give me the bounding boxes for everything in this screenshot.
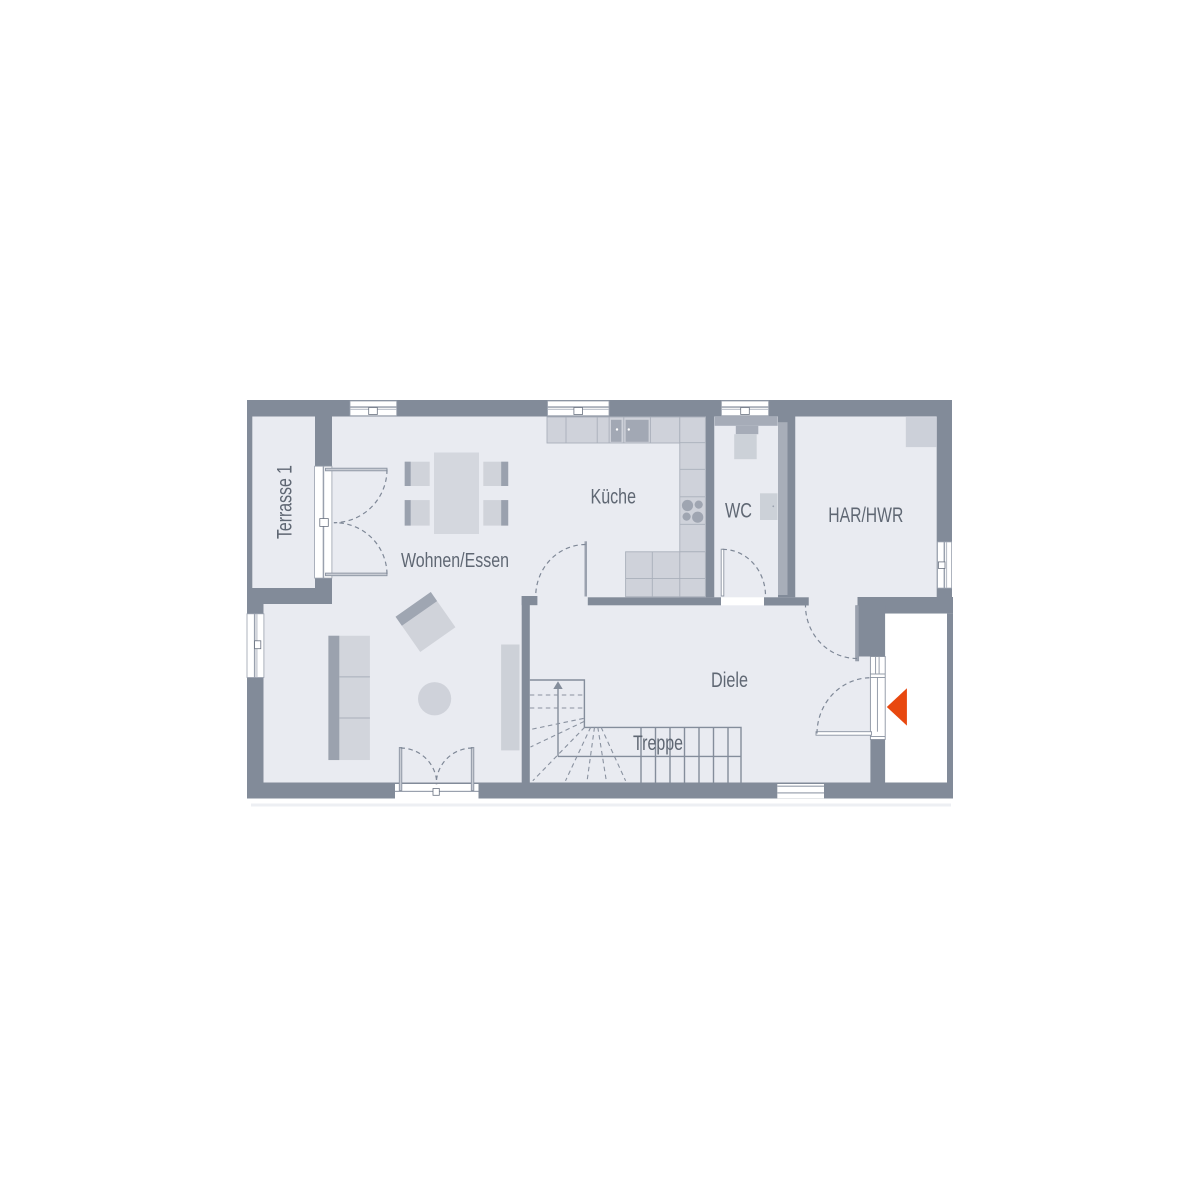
svg-text:Wohnen/Essen: Wohnen/Essen	[401, 549, 509, 572]
svg-text:Terrasse 1: Terrasse 1	[274, 465, 297, 539]
svg-text:WC: WC	[725, 500, 752, 523]
svg-text:Treppe: Treppe	[633, 732, 683, 755]
svg-text:Diele: Diele	[711, 669, 748, 692]
svg-text:HAR/HWR: HAR/HWR	[828, 504, 903, 527]
svg-text:Küche: Küche	[591, 485, 637, 508]
